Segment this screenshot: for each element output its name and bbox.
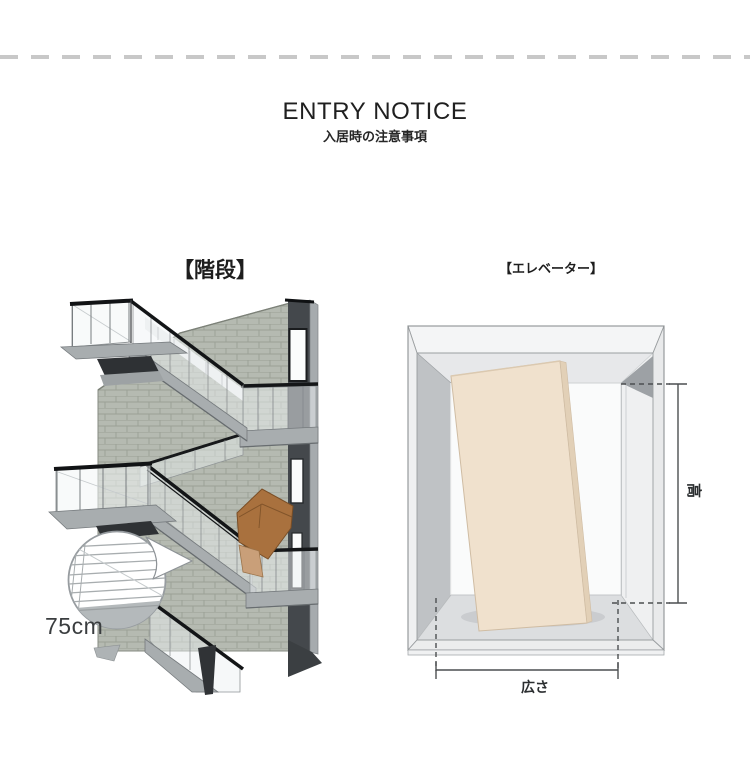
- right-dark-wall: [285, 300, 322, 677]
- elevator-illustration: [395, 315, 715, 700]
- page-subtitle: 入居時の注意事項: [0, 126, 750, 145]
- page: ENTRY NOTICE 入居時の注意事項 【階段】 【エレベーター】: [0, 0, 750, 777]
- elevator-section-label: 【エレベーター】: [471, 258, 631, 277]
- page-title: ENTRY NOTICE: [0, 98, 750, 126]
- dashed-divider: [0, 55, 750, 59]
- elevator-height-label: 高: [684, 483, 705, 498]
- elevator-width-label: 広さ: [487, 677, 583, 697]
- stairs-width-measurement: 75cm: [45, 613, 103, 640]
- mid-right-landing: [240, 384, 318, 447]
